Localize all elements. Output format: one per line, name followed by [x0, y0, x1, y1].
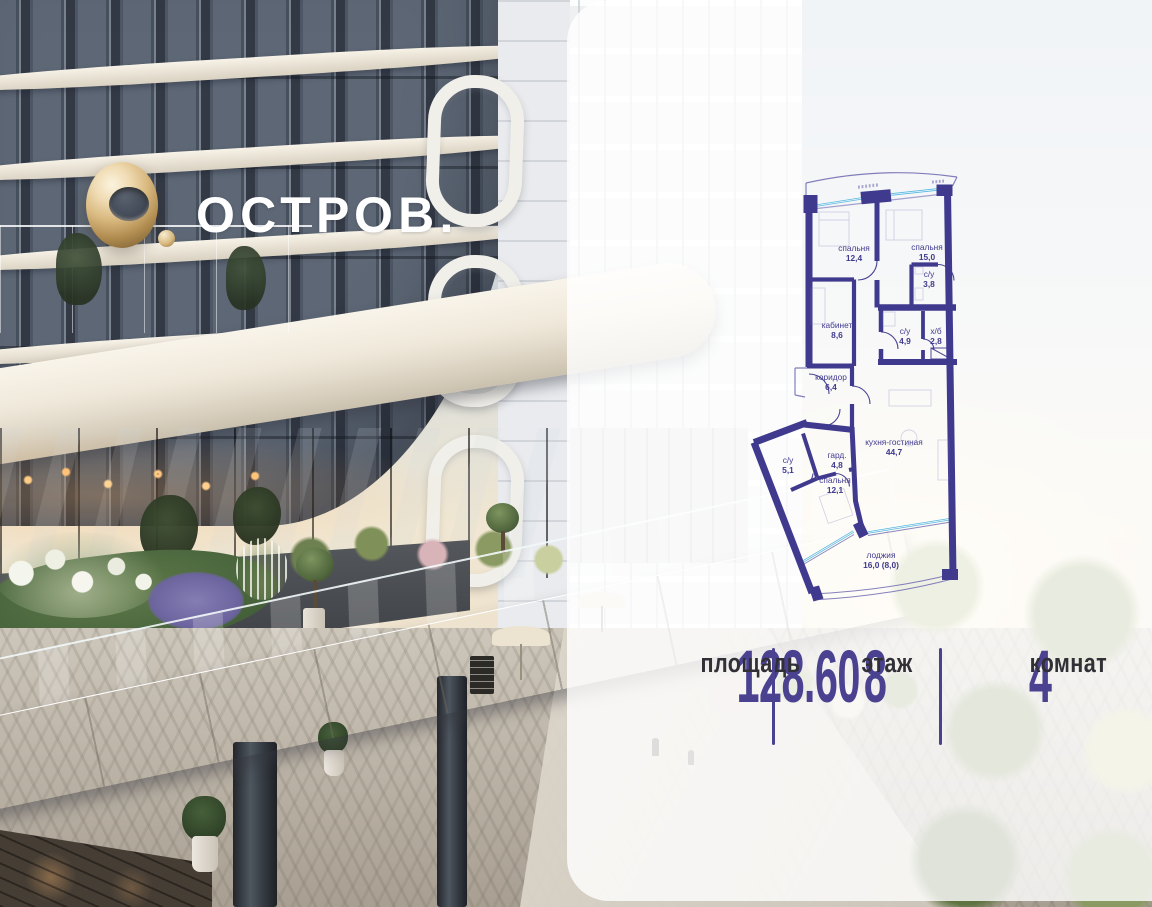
area-label: площадь [700, 648, 800, 679]
room-name: лоджия [867, 550, 896, 560]
room-name: кабинет [822, 320, 853, 330]
plan-ticks [858, 180, 944, 189]
floorplan: спальня 12,4 спальня 15,0 с/у 3,8 кабине… [739, 150, 999, 620]
room-area: 2,8 [930, 336, 942, 346]
topiary-tree [296, 548, 334, 582]
logo-torus-icon [86, 162, 158, 248]
room-name: гард. [827, 450, 846, 460]
room-area: 4,9 [899, 336, 911, 346]
room-area: 6,4 [825, 382, 837, 392]
room-name: с/у [783, 455, 794, 465]
room-area: 15,0 [919, 252, 936, 262]
brand-name: ОСТРОВ. [196, 186, 459, 244]
room-area: 12,4 [846, 253, 863, 263]
room-name: с/у [924, 269, 935, 279]
room-area: 8,6 [831, 330, 843, 340]
room-name: х/б [930, 326, 941, 336]
room-area: 4,8 [831, 460, 843, 470]
logo-dot-icon [158, 230, 175, 247]
hydrangea-flowers [0, 532, 164, 618]
stats-divider [772, 648, 775, 745]
brand-logo[interactable]: ОСТРОВ. [0, 0, 520, 280]
room-name: с/у [900, 326, 911, 336]
room-name: спальня [838, 243, 870, 253]
room-area: 5,1 [782, 465, 794, 475]
stats-divider [939, 648, 942, 745]
room-name: кухня-гостиная [865, 437, 923, 447]
room-name: спальня [819, 475, 851, 485]
logo-torus-hole [109, 187, 149, 221]
floor-label: этаж [861, 648, 912, 679]
page: ОСТРОВ. [0, 0, 1152, 907]
room-name: спальня [911, 242, 943, 252]
plant-pot [192, 836, 218, 872]
apartment-card[interactable]: спальня 12,4 спальня 15,0 с/у 3,8 кабине… [567, 0, 1152, 901]
apartment-stats: 128.60 площадь 8 этаж 4 комнат [567, 644, 1152, 754]
room-name: коридор [815, 372, 847, 382]
topiary-tree [486, 503, 519, 533]
room-area: 16,0 (8,0) [863, 560, 899, 570]
room-area: 3,8 [923, 279, 935, 289]
rooms-label: комнат [1030, 648, 1107, 679]
room-area: 44,7 [886, 447, 903, 457]
room-area: 12,1 [827, 485, 844, 495]
